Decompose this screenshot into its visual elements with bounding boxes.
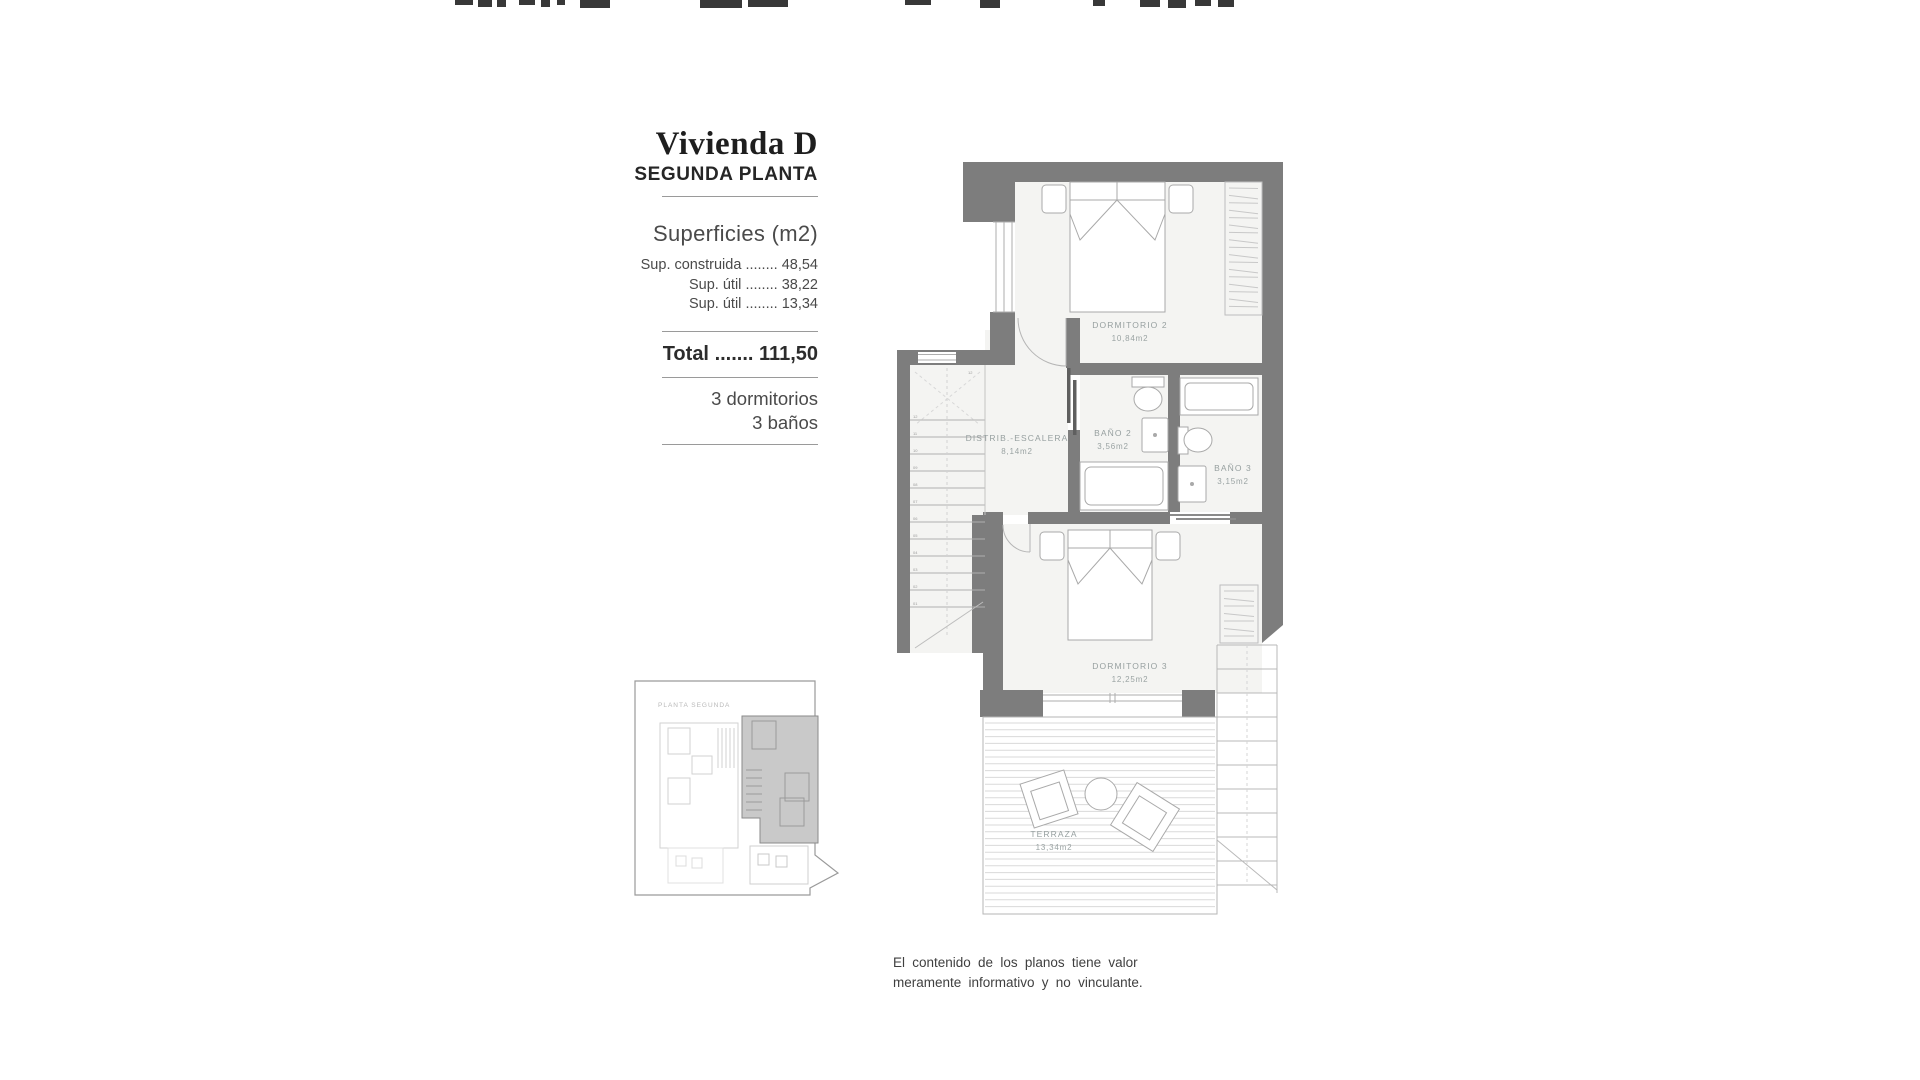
room-area: 13,34m2 [1036,843,1073,852]
feature-item: 3 baños [540,411,818,435]
room-label: BAÑO 3 [1214,463,1252,473]
room-label: DORMITORIO 2 [1092,320,1167,330]
room-label: TERRAZA [1030,829,1077,839]
room-label: DORMITORIO 3 [1092,661,1167,671]
dwelling-title: Vivienda D [540,126,818,162]
stair-step-number: 10 [913,448,918,453]
room-label: DISTRIB.-ESCALERA [966,433,1069,443]
stair-step-number: 09 [913,465,918,470]
surface-row: Sup. útil ........ 38,22 [540,276,818,296]
fragment [497,0,506,7]
toilet [1134,387,1162,411]
window-stair-top [918,352,956,363]
deck-lines [985,723,1215,907]
armchair [1020,770,1078,828]
floor-subtitle: SEGUNDA PLANTA [540,164,818,186]
surfaces-heading: Superficies (m2) [540,221,818,247]
surface-row: Sup. construida ........ 48,54 [540,256,818,276]
stair-step-number: 05 [913,533,918,538]
fragment [519,0,535,5]
stair-step-number: 12 [913,414,918,419]
pocket-door-bano2 [1067,368,1077,435]
round-table [1085,778,1117,810]
nightstand [1040,532,1064,560]
fragment [748,0,788,7]
stair-step-number: 02 [913,584,918,589]
key-plan-caption: PLANTA SEGUNDA [658,702,730,709]
sliding-door-bano3 [1170,514,1236,520]
features-list: 3 dormitorios 3 baños [540,378,818,444]
fragment [980,0,1000,8]
armchair [1111,783,1180,852]
divider [662,196,818,197]
surface-row: Sup. útil ........ 13,34 [540,295,818,315]
stair-step-number: 07 [913,499,918,504]
window-dorm2-left [993,222,1015,312]
bathtub [1180,378,1258,415]
fragment [1140,0,1160,7]
nightstand [1042,185,1066,213]
fragment [455,0,473,5]
fragment [557,0,565,5]
room-area: 12,25m2 [1112,675,1149,684]
feature-item: 3 dormitorios [540,387,818,411]
bathtub [1080,462,1168,510]
bed [1070,182,1165,312]
stair-step-number: 01 [913,601,918,606]
fragment [1195,0,1211,6]
room-area: 3,15m2 [1217,477,1248,486]
fragment [700,0,742,8]
key-plan: PLANTA SEGUNDA [630,678,850,908]
fragment [1218,0,1234,7]
disclaimer: El contenido de los planos tiene valor m… [893,953,1143,993]
surface-table: Sup. construida ........ 48,54 Sup. útil… [540,256,818,315]
nightstand [1156,532,1180,560]
stair-step-number: 04 [913,550,918,555]
toilet [1184,428,1212,452]
disclaimer-line: meramente informativo y no vinculante. [893,973,1143,993]
stair-step-number: 06 [913,516,918,521]
stair-step-number: 03 [913,567,918,572]
room-label: BAÑO 2 [1094,428,1132,438]
fragment [1168,0,1186,8]
room-area: 10,84m2 [1112,334,1149,343]
fragment [580,0,610,8]
fragment [1093,0,1105,6]
window-dorm3-bottom [1043,693,1182,703]
info-panel: Vivienda D SEGUNDA PLANTA Superficies (m… [540,126,818,445]
fragment [478,0,492,7]
room-area: 8,14m2 [1001,447,1032,456]
disclaimer-line: El contenido de los planos tiene valor [893,953,1143,973]
fragment [541,0,550,7]
stair-top-label: 12 [968,370,973,375]
total-row: Total ....... 111,50 [540,332,818,377]
nightstand [1169,185,1193,213]
toilet-tank [1132,377,1164,387]
room-area: 3,56m2 [1097,442,1128,451]
floor-plan: 12 121110090807060504030201 [880,140,1310,930]
fragment [905,0,931,5]
stair-step-number: 08 [913,482,918,487]
divider [662,444,818,445]
terraza [983,717,1217,914]
